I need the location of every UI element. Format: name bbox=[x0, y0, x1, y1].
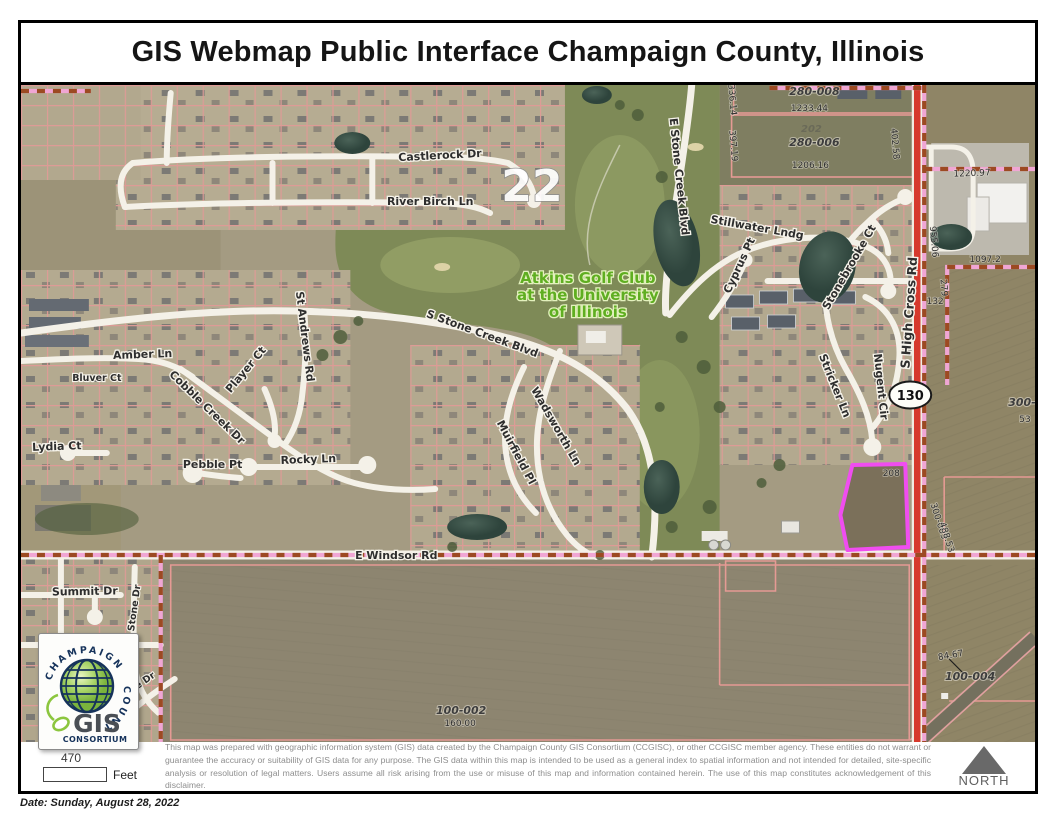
map-label-1220-97: 1220.97 bbox=[953, 168, 990, 179]
map-label-river-birch-ln: River Birch Ln bbox=[387, 195, 473, 208]
map-label-1206-16: 1206.16 bbox=[792, 161, 829, 171]
map-label-amber-ln: Amber Ln bbox=[113, 347, 173, 362]
logo-subname: CONSORTIUM bbox=[63, 735, 128, 744]
gis-consortium-logo: CHAMPAIGN COUNTY GIS CONSORTIUM bbox=[38, 633, 139, 750]
map-label-1233-44: 1233.44 bbox=[791, 104, 828, 114]
svg-text:130: 130 bbox=[897, 389, 924, 404]
map-label-pebble-pt: Pebble Pt bbox=[183, 458, 242, 471]
map-label-lydia-ct: Lydia Ct bbox=[32, 439, 82, 454]
map-label-280-008: 280-008 bbox=[789, 85, 840, 98]
map-label-of-illinois: of Illinois bbox=[549, 303, 627, 321]
map-label-rocky-ln: Rocky Ln bbox=[280, 452, 336, 467]
disclaimer-text: This map was prepared with geographic in… bbox=[165, 741, 931, 793]
map-label-300-: 300- bbox=[1008, 396, 1035, 409]
map-label-202: 202 bbox=[801, 124, 822, 135]
map-label-279: 279 bbox=[937, 279, 948, 297]
scale-bar bbox=[43, 767, 107, 782]
footer: 470 Feet This map was prepared with geog… bbox=[21, 742, 1035, 791]
scale-unit: Feet bbox=[113, 768, 137, 782]
route-130-shield: 130 bbox=[889, 382, 931, 409]
map-label-summit-dr: Summit Dr bbox=[52, 584, 119, 598]
logo-name: GIS bbox=[73, 709, 121, 738]
globe-icon bbox=[61, 660, 113, 712]
map-label-132: 132 bbox=[927, 297, 944, 307]
map-label-100-002: 100-002 bbox=[436, 704, 487, 717]
map-label-1097-2: 1097.2 bbox=[969, 255, 1000, 265]
scale-block: 470 Feet bbox=[33, 751, 151, 782]
scale-value: 470 bbox=[61, 751, 81, 765]
map-label-atkins-golf-club: Atkins Golf Club bbox=[520, 269, 656, 287]
north-arrow: NORTH bbox=[945, 745, 1023, 788]
map-label-bluver-ct: Bluver Ct bbox=[72, 373, 122, 384]
aerial-map[interactable]: 130 22 Castlerock DrRiver Birch LnE Ston… bbox=[21, 85, 1035, 745]
section-number: 22 bbox=[501, 161, 562, 212]
date-line: Date: Sunday, August 28, 2022 bbox=[20, 797, 179, 809]
map-label-160-00: 160.00 bbox=[444, 719, 476, 729]
title-bar: GIS Webmap Public Interface Champaign Co… bbox=[21, 23, 1035, 85]
map-label-e-windsor-rd: E Windsor Rd bbox=[355, 549, 437, 562]
map-label-53: 53 bbox=[1019, 415, 1030, 425]
map-print-page: GIS Webmap Public Interface Champaign Co… bbox=[0, 0, 1056, 816]
map-label-at-the-university: at the University bbox=[517, 286, 659, 304]
map-frame: GIS Webmap Public Interface Champaign Co… bbox=[18, 20, 1038, 794]
map-label-208: 208 bbox=[883, 469, 900, 479]
north-label: NORTH bbox=[959, 773, 1010, 788]
map-label-100-004: 100-004 bbox=[945, 670, 995, 683]
map-label-280-006: 280-006 bbox=[789, 136, 840, 149]
north-arrow-icon bbox=[958, 745, 1010, 775]
page-title: GIS Webmap Public Interface Champaign Co… bbox=[132, 36, 925, 69]
map-viewport[interactable]: 130 22 Castlerock DrRiver Birch LnE Ston… bbox=[21, 85, 1035, 745]
